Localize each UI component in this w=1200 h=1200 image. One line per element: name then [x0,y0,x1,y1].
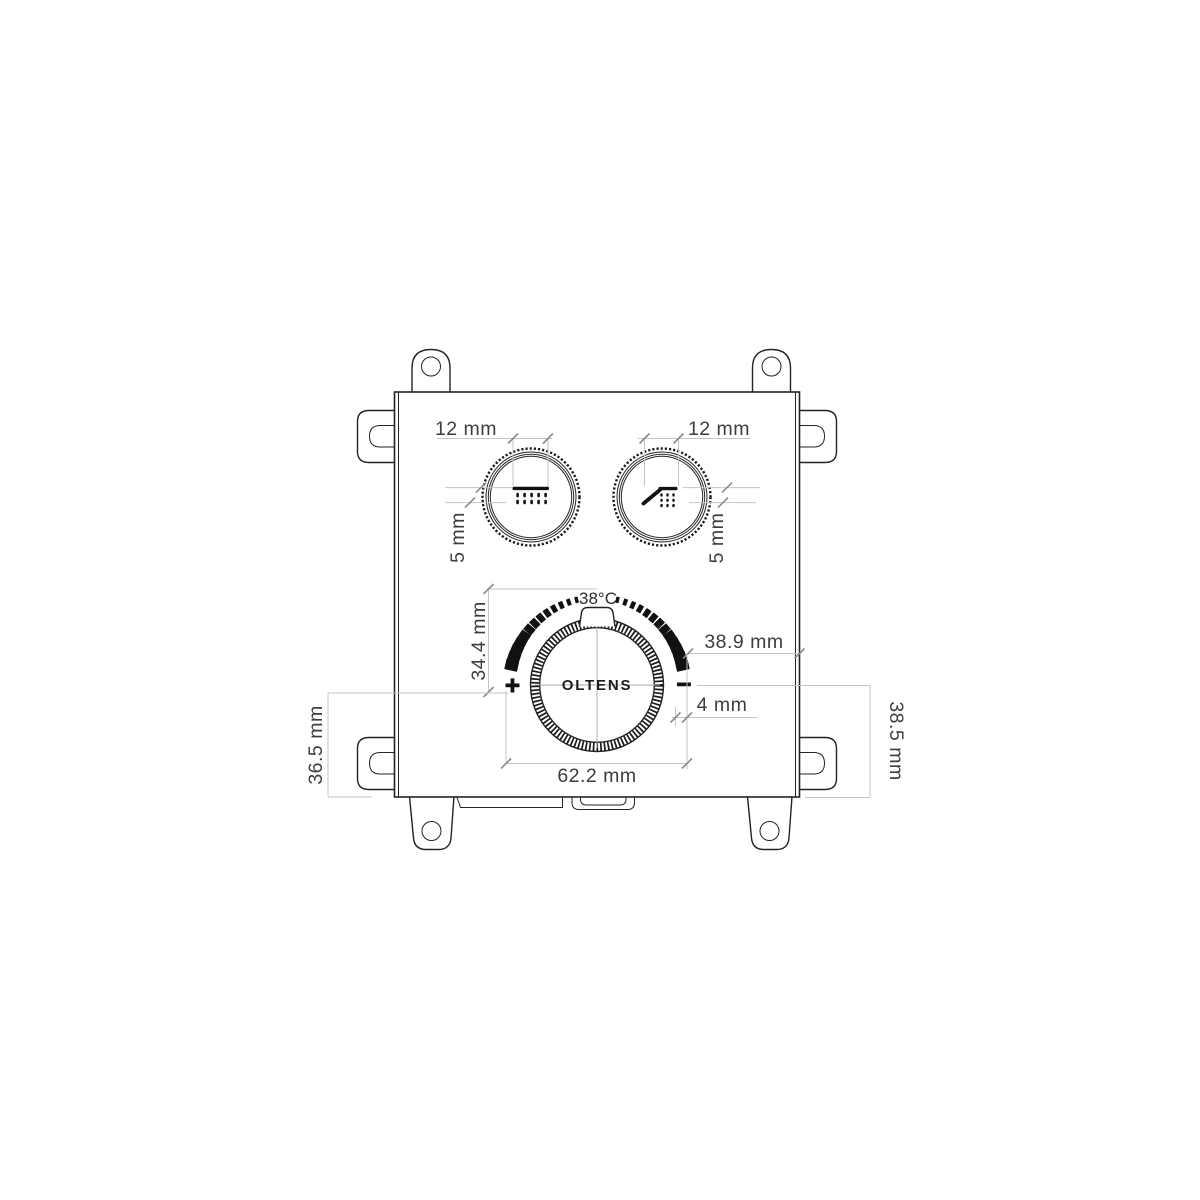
shower-mixer-drawing: OLTENS 38°C + − [0,0,1200,1200]
side-slot-left-lower [370,753,397,775]
dim-knob-left-spray-height: 5 mm [447,512,469,563]
mounting-hole-top-right [762,357,781,376]
dim-scale-height: 34.4 mm [468,601,490,680]
bottom-ports [457,798,635,810]
bottom-port-inner [581,798,627,806]
mounting-hole-top-left [422,357,441,376]
dim-knob-left-width: 12 mm [435,418,497,440]
side-slot-left-upper [370,426,397,448]
dim-bottom-right-offset: 38.5 mm [885,701,907,780]
temperature-label: 38°C [579,589,617,608]
dim-thermostat-width: 62.2 mm [557,765,636,787]
side-slot-right-lower [798,753,825,775]
bottom-slot-wide [457,798,563,808]
dim-scale-gap: 4 mm [697,694,748,716]
mounting-hole-bottom-left [422,822,441,841]
technical-drawing-canvas: OLTENS 38°C + − [0,0,1200,1200]
dim-scale-to-edge: 38.9 mm [704,631,783,653]
minus-sign: − [676,669,691,699]
mounting-hole-bottom-right [760,822,779,841]
dim-bottom-left-offset: 36.5 mm [305,705,327,784]
brand-label: OLTENS [562,677,633,694]
dim-knob-right-width: 12 mm [688,418,750,440]
spray-dots [660,493,674,507]
thermostat-safety-button [580,608,616,627]
side-slot-right-upper [798,426,825,448]
plus-sign: + [505,670,520,700]
dim-knob-right-spray-height: 5 mm [706,513,728,564]
